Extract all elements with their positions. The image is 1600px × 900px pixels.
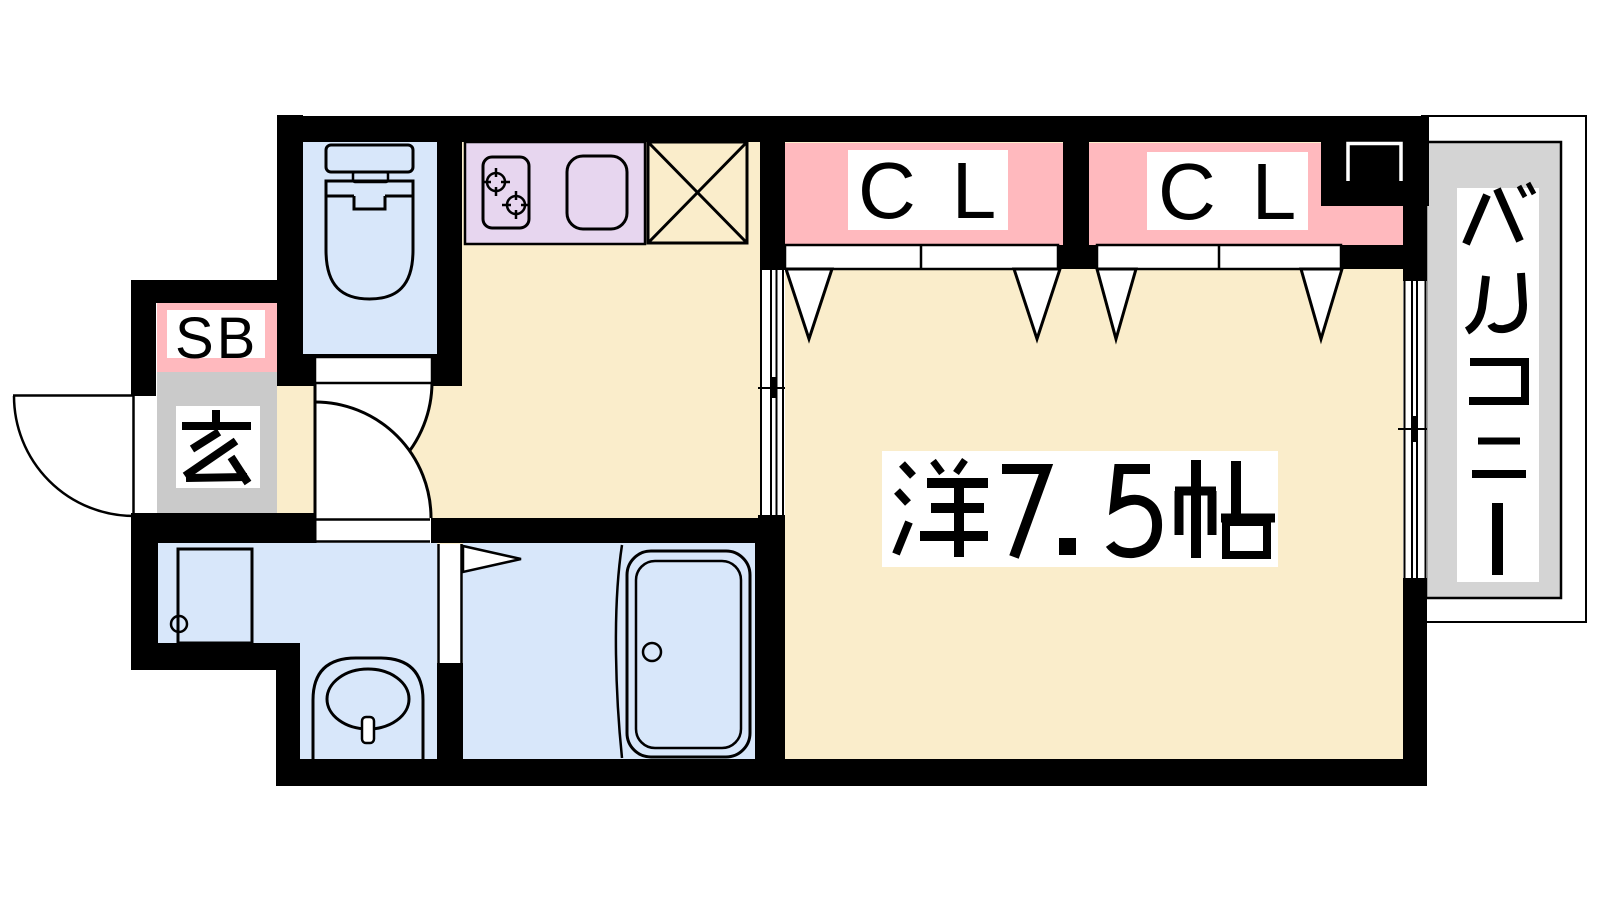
svg-text:CL: CL — [1158, 147, 1332, 236]
svg-text:SB: SB — [175, 306, 258, 371]
svg-text:CL: CL — [858, 146, 1032, 235]
